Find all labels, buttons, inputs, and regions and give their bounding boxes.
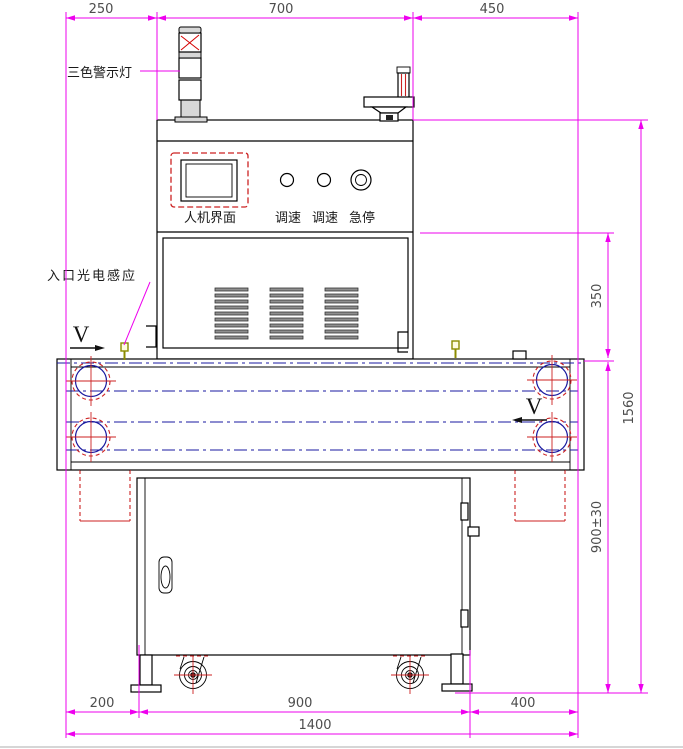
door-latch [468, 527, 479, 536]
speed-knob-1-label: 调速 [275, 211, 301, 226]
caster-wheel-right [391, 656, 429, 694]
direction-in-label: V [73, 322, 90, 347]
vent-grille-center [270, 288, 303, 339]
hmi-screen[interactable] [181, 160, 237, 201]
unit-base-block [386, 115, 393, 120]
exit-photo-sensor-icon [452, 341, 459, 358]
hmi-label: 人机界面 [184, 211, 236, 226]
speed-knob-2[interactable] [318, 174, 331, 187]
tower-base-column [181, 100, 200, 117]
direction-in-arrowhead-icon [95, 345, 105, 351]
emergency-stop-button[interactable] [351, 170, 371, 190]
cabinet-outline [137, 478, 470, 655]
top-mounted-unit [364, 67, 414, 121]
unit-cap [397, 67, 410, 73]
entry-sensor-label: 入口光电感应 [47, 268, 137, 284]
dim-total-width: 1400 [298, 718, 331, 733]
speed-knob-1[interactable] [281, 174, 294, 187]
dim-tunnel-height: 350 [590, 284, 605, 309]
tower-spacer [179, 52, 201, 58]
tower-light-green [179, 80, 201, 100]
feet-and-casters [131, 654, 472, 694]
dim-belt-height: 900±30 [590, 501, 605, 553]
dim-top-center: 700 [269, 2, 294, 17]
dim-total-height: 1560 [622, 391, 637, 424]
unit-neck [372, 107, 406, 113]
speed-knob-2-label: 调速 [312, 211, 338, 226]
tower-base-plate [175, 117, 207, 122]
unit-cylinder [398, 73, 409, 98]
vent-grille-left [215, 288, 248, 339]
dim-cabinet-width: 900 [288, 696, 313, 711]
door-hinge-top [461, 503, 468, 520]
door-hinge-bottom [461, 610, 468, 627]
lower-cabinet [137, 478, 479, 655]
dim-top-right: 450 [480, 2, 505, 17]
leveling-foot-right [442, 654, 472, 691]
engineering-drawing-canvas: 人机界面 调速 调速 急停 三色警示灯 [0, 0, 683, 749]
tower-light-label: 三色警示灯 [67, 65, 132, 81]
bracket-left-sides [80, 470, 130, 521]
caster-wheel-left [174, 656, 212, 694]
tower-light-yellow [179, 58, 201, 78]
dim-top-left: 250 [89, 2, 114, 17]
conveyor-frame [57, 359, 584, 470]
unit-disc [364, 97, 414, 107]
entry-photo-sensor-icon [121, 343, 128, 360]
leader-entry-sensor [124, 282, 150, 345]
direction-out-label: V [526, 394, 543, 419]
belt-guide-left [146, 326, 156, 347]
machine-upper-body [157, 120, 413, 359]
tower-top-cap [179, 27, 201, 33]
upper-cabinet-outline [157, 120, 413, 359]
dim-bottom-right-offset: 400 [511, 696, 536, 711]
bracket-right-sides [515, 470, 565, 521]
dim-bottom-left-offset: 200 [90, 696, 115, 711]
belt-stop-block [513, 351, 526, 359]
warning-tower-light: 三色警示灯 [67, 27, 207, 122]
leveling-foot-left [131, 655, 161, 692]
vent-grille-right [325, 288, 358, 339]
emergency-stop-label: 急停 [349, 210, 375, 226]
